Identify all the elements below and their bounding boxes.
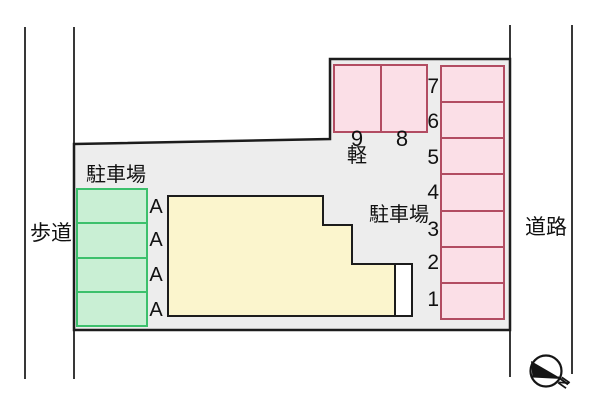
parking-space-a2 (78, 222, 146, 256)
building-porch (395, 264, 412, 316)
parking-space-5 (442, 137, 503, 173)
parking-lot-left-label: 駐車場 (86, 164, 146, 186)
parking-space-9 (335, 66, 380, 131)
space-label-a2: A (147, 230, 165, 250)
space-number-6: 6 (424, 111, 439, 132)
space-label-a3: A (147, 265, 165, 285)
parking-space-2 (442, 246, 503, 282)
parking-space-8 (380, 66, 427, 131)
road-label: 道路 (525, 216, 567, 239)
parking-lot-right-label: 駐車場 (369, 204, 429, 226)
parking-space-3 (442, 210, 503, 246)
sidewalk-label: 歩道 (30, 222, 72, 245)
space-number-2: 2 (424, 252, 439, 273)
space-label-a4: A (147, 300, 165, 320)
compass-north-arrow: N (531, 356, 574, 392)
space-number-5: 5 (424, 147, 439, 168)
green-parking-block (76, 188, 148, 327)
parking-space-4 (442, 173, 503, 209)
space-number-9: 9 (349, 128, 365, 150)
parking-layout-diagram: N 歩道 道路 駐車場 駐車場 軽 9 8 7 6 5 4 3 2 1 A A … (0, 0, 600, 409)
numbered-parking-block (440, 65, 505, 320)
parking-space-a1 (78, 190, 146, 222)
space-number-1: 1 (424, 289, 439, 310)
parking-space-7 (442, 67, 503, 101)
space-number-7: 7 (424, 76, 439, 97)
parking-space-1 (442, 282, 503, 318)
parking-space-a3 (78, 257, 146, 291)
parking-space-a4 (78, 291, 146, 325)
parking-space-6 (442, 101, 503, 137)
space-label-a1: A (147, 197, 165, 217)
space-number-3: 3 (424, 219, 439, 240)
space-number-4: 4 (424, 182, 439, 203)
space-number-8: 8 (394, 128, 410, 150)
kei-parking-block (333, 64, 428, 133)
